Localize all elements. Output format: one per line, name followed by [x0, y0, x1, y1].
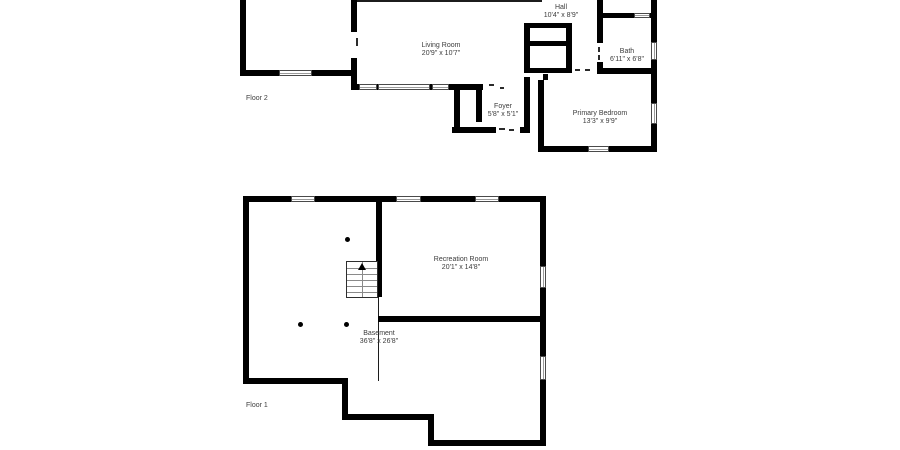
window	[432, 84, 449, 90]
wall	[243, 378, 348, 384]
window	[378, 84, 430, 90]
room-label-primary-bedroom: Primary Bedroom 13'3" x 9'9"	[550, 110, 650, 125]
room-name: Living Room	[391, 42, 491, 50]
wall	[566, 23, 572, 73]
window	[588, 146, 609, 152]
door-dash	[489, 84, 494, 86]
window	[540, 266, 546, 288]
room-dims: 10'0" x 10'4"	[256, 0, 356, 3]
wall	[378, 316, 546, 322]
wall	[342, 414, 434, 420]
room-name: Bath	[577, 48, 677, 56]
column-dot	[345, 237, 350, 242]
window	[396, 196, 421, 202]
door-dash	[585, 69, 590, 71]
wall	[243, 196, 249, 384]
door-dash	[509, 129, 514, 131]
wall	[597, 68, 657, 74]
window	[475, 196, 499, 202]
room-name: Primary Bedroom	[550, 110, 650, 118]
window	[634, 13, 650, 18]
window	[651, 103, 657, 124]
window	[359, 84, 377, 90]
wall	[351, 0, 357, 32]
column-dot	[298, 322, 303, 327]
room-dims: 6'11" x 6'8"	[577, 56, 677, 64]
window	[540, 356, 546, 380]
wall	[524, 68, 572, 73]
wall	[428, 440, 546, 446]
floorplan-image: 10'0" x 10'4" Living Room 20'9" x 10'7" …	[0, 0, 900, 450]
room-dims: 36'8" x 26'8"	[329, 338, 429, 346]
room-dims: 10'4" x 8'9"	[511, 12, 611, 20]
wall	[452, 127, 496, 133]
room-label-cut-room: 10'0" x 10'4"	[256, 0, 356, 3]
cut-edge-line	[357, 0, 542, 2]
room-label-basement: Basement 36'8" x 26'8"	[329, 330, 429, 345]
wall	[243, 196, 546, 202]
wall	[240, 0, 246, 76]
room-label-foyer: Foyer 5'8" x 5'1"	[453, 103, 553, 118]
room-name: Hall	[511, 4, 611, 12]
room-label-recreation-room: Recreation Room 20'1" x 14'8"	[411, 256, 511, 271]
room-name: Recreation Room	[411, 256, 511, 264]
window	[291, 196, 315, 202]
room-dims: 20'1" x 14'8"	[411, 264, 511, 272]
door-dash	[575, 69, 580, 71]
column-dot	[344, 322, 349, 327]
wall	[524, 23, 572, 28]
wall	[651, 0, 657, 152]
room-label-living-room: Living Room 20'9" x 10'7"	[391, 42, 491, 57]
door-dash	[500, 87, 504, 89]
room-name: Basement	[329, 330, 429, 338]
floor-2-label: Floor 2	[246, 95, 306, 103]
stair-direction-arrow-icon	[358, 263, 366, 270]
room-dims: 20'9" x 10'7"	[391, 50, 491, 58]
door-dash	[499, 128, 505, 130]
floor-1-label: Floor 1	[246, 402, 306, 410]
room-label-bath: Bath 6'11" x 6'8"	[577, 48, 677, 63]
room-label-hall: Hall 10'4" x 8'9"	[511, 4, 611, 19]
window	[279, 70, 312, 76]
staircase	[346, 261, 378, 298]
room-dims: 5'8" x 5'1"	[453, 111, 553, 119]
wall	[524, 23, 530, 73]
wall	[524, 41, 572, 46]
door-dash	[356, 38, 358, 46]
room-dims: 13'3" x 9'9"	[550, 118, 650, 126]
room-name: Foyer	[453, 103, 553, 111]
